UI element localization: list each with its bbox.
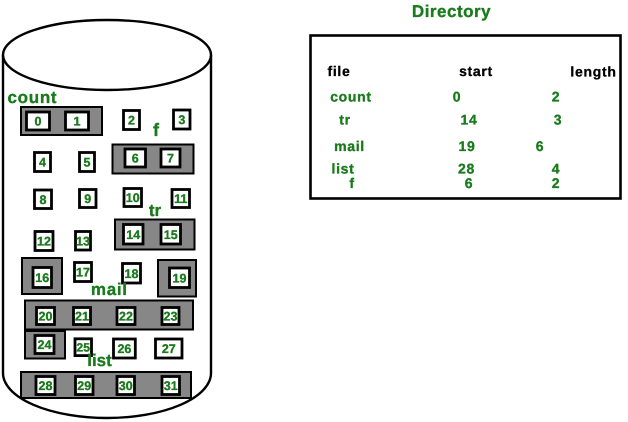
- svg-text:6: 6: [132, 152, 139, 166]
- svg-text:3: 3: [554, 112, 563, 128]
- svg-text:2: 2: [552, 175, 561, 191]
- svg-text:10: 10: [126, 191, 140, 205]
- svg-text:18: 18: [125, 267, 139, 281]
- svg-text:19: 19: [173, 271, 187, 285]
- svg-text:count: count: [8, 88, 58, 107]
- svg-text:6: 6: [536, 138, 545, 154]
- svg-text:8: 8: [40, 193, 47, 207]
- svg-text:tr: tr: [339, 112, 351, 128]
- svg-text:4: 4: [39, 156, 46, 170]
- svg-text:Directory: Directory: [412, 2, 491, 21]
- svg-text:9: 9: [84, 192, 91, 206]
- svg-text:length: length: [570, 64, 616, 80]
- svg-text:13: 13: [76, 234, 90, 248]
- svg-text:3: 3: [178, 113, 185, 127]
- svg-text:0: 0: [453, 89, 462, 105]
- svg-text:0: 0: [35, 115, 42, 129]
- svg-text:24: 24: [38, 338, 52, 352]
- svg-text:14: 14: [461, 112, 478, 128]
- svg-text:7: 7: [167, 152, 174, 166]
- svg-text:6: 6: [465, 175, 474, 191]
- svg-text:30: 30: [119, 379, 133, 393]
- svg-text:16: 16: [35, 271, 49, 285]
- svg-text:tr: tr: [149, 201, 162, 220]
- svg-text:17: 17: [76, 266, 90, 280]
- svg-text:file: file: [327, 63, 350, 79]
- svg-text:5: 5: [84, 156, 91, 170]
- svg-text:list: list: [87, 351, 112, 370]
- svg-text:1: 1: [74, 115, 81, 129]
- svg-text:31: 31: [164, 379, 178, 393]
- svg-text:f: f: [349, 175, 354, 191]
- svg-text:27: 27: [162, 342, 176, 356]
- svg-text:12: 12: [37, 235, 51, 249]
- svg-text:f: f: [153, 120, 160, 140]
- svg-text:19: 19: [459, 138, 476, 154]
- svg-text:start: start: [459, 63, 493, 79]
- svg-text:15: 15: [164, 228, 178, 242]
- svg-text:26: 26: [117, 342, 131, 356]
- svg-text:mail: mail: [334, 138, 365, 154]
- svg-text:23: 23: [164, 310, 178, 324]
- svg-text:21: 21: [75, 310, 89, 324]
- svg-text:20: 20: [39, 310, 53, 324]
- svg-text:22: 22: [119, 310, 133, 324]
- svg-text:29: 29: [77, 379, 91, 393]
- svg-text:2: 2: [128, 114, 135, 128]
- svg-text:2: 2: [552, 89, 561, 105]
- svg-text:28: 28: [39, 379, 53, 393]
- svg-text:count: count: [330, 89, 372, 105]
- svg-text:11: 11: [174, 192, 187, 206]
- svg-text:14: 14: [126, 228, 140, 242]
- svg-text:mail: mail: [91, 280, 128, 299]
